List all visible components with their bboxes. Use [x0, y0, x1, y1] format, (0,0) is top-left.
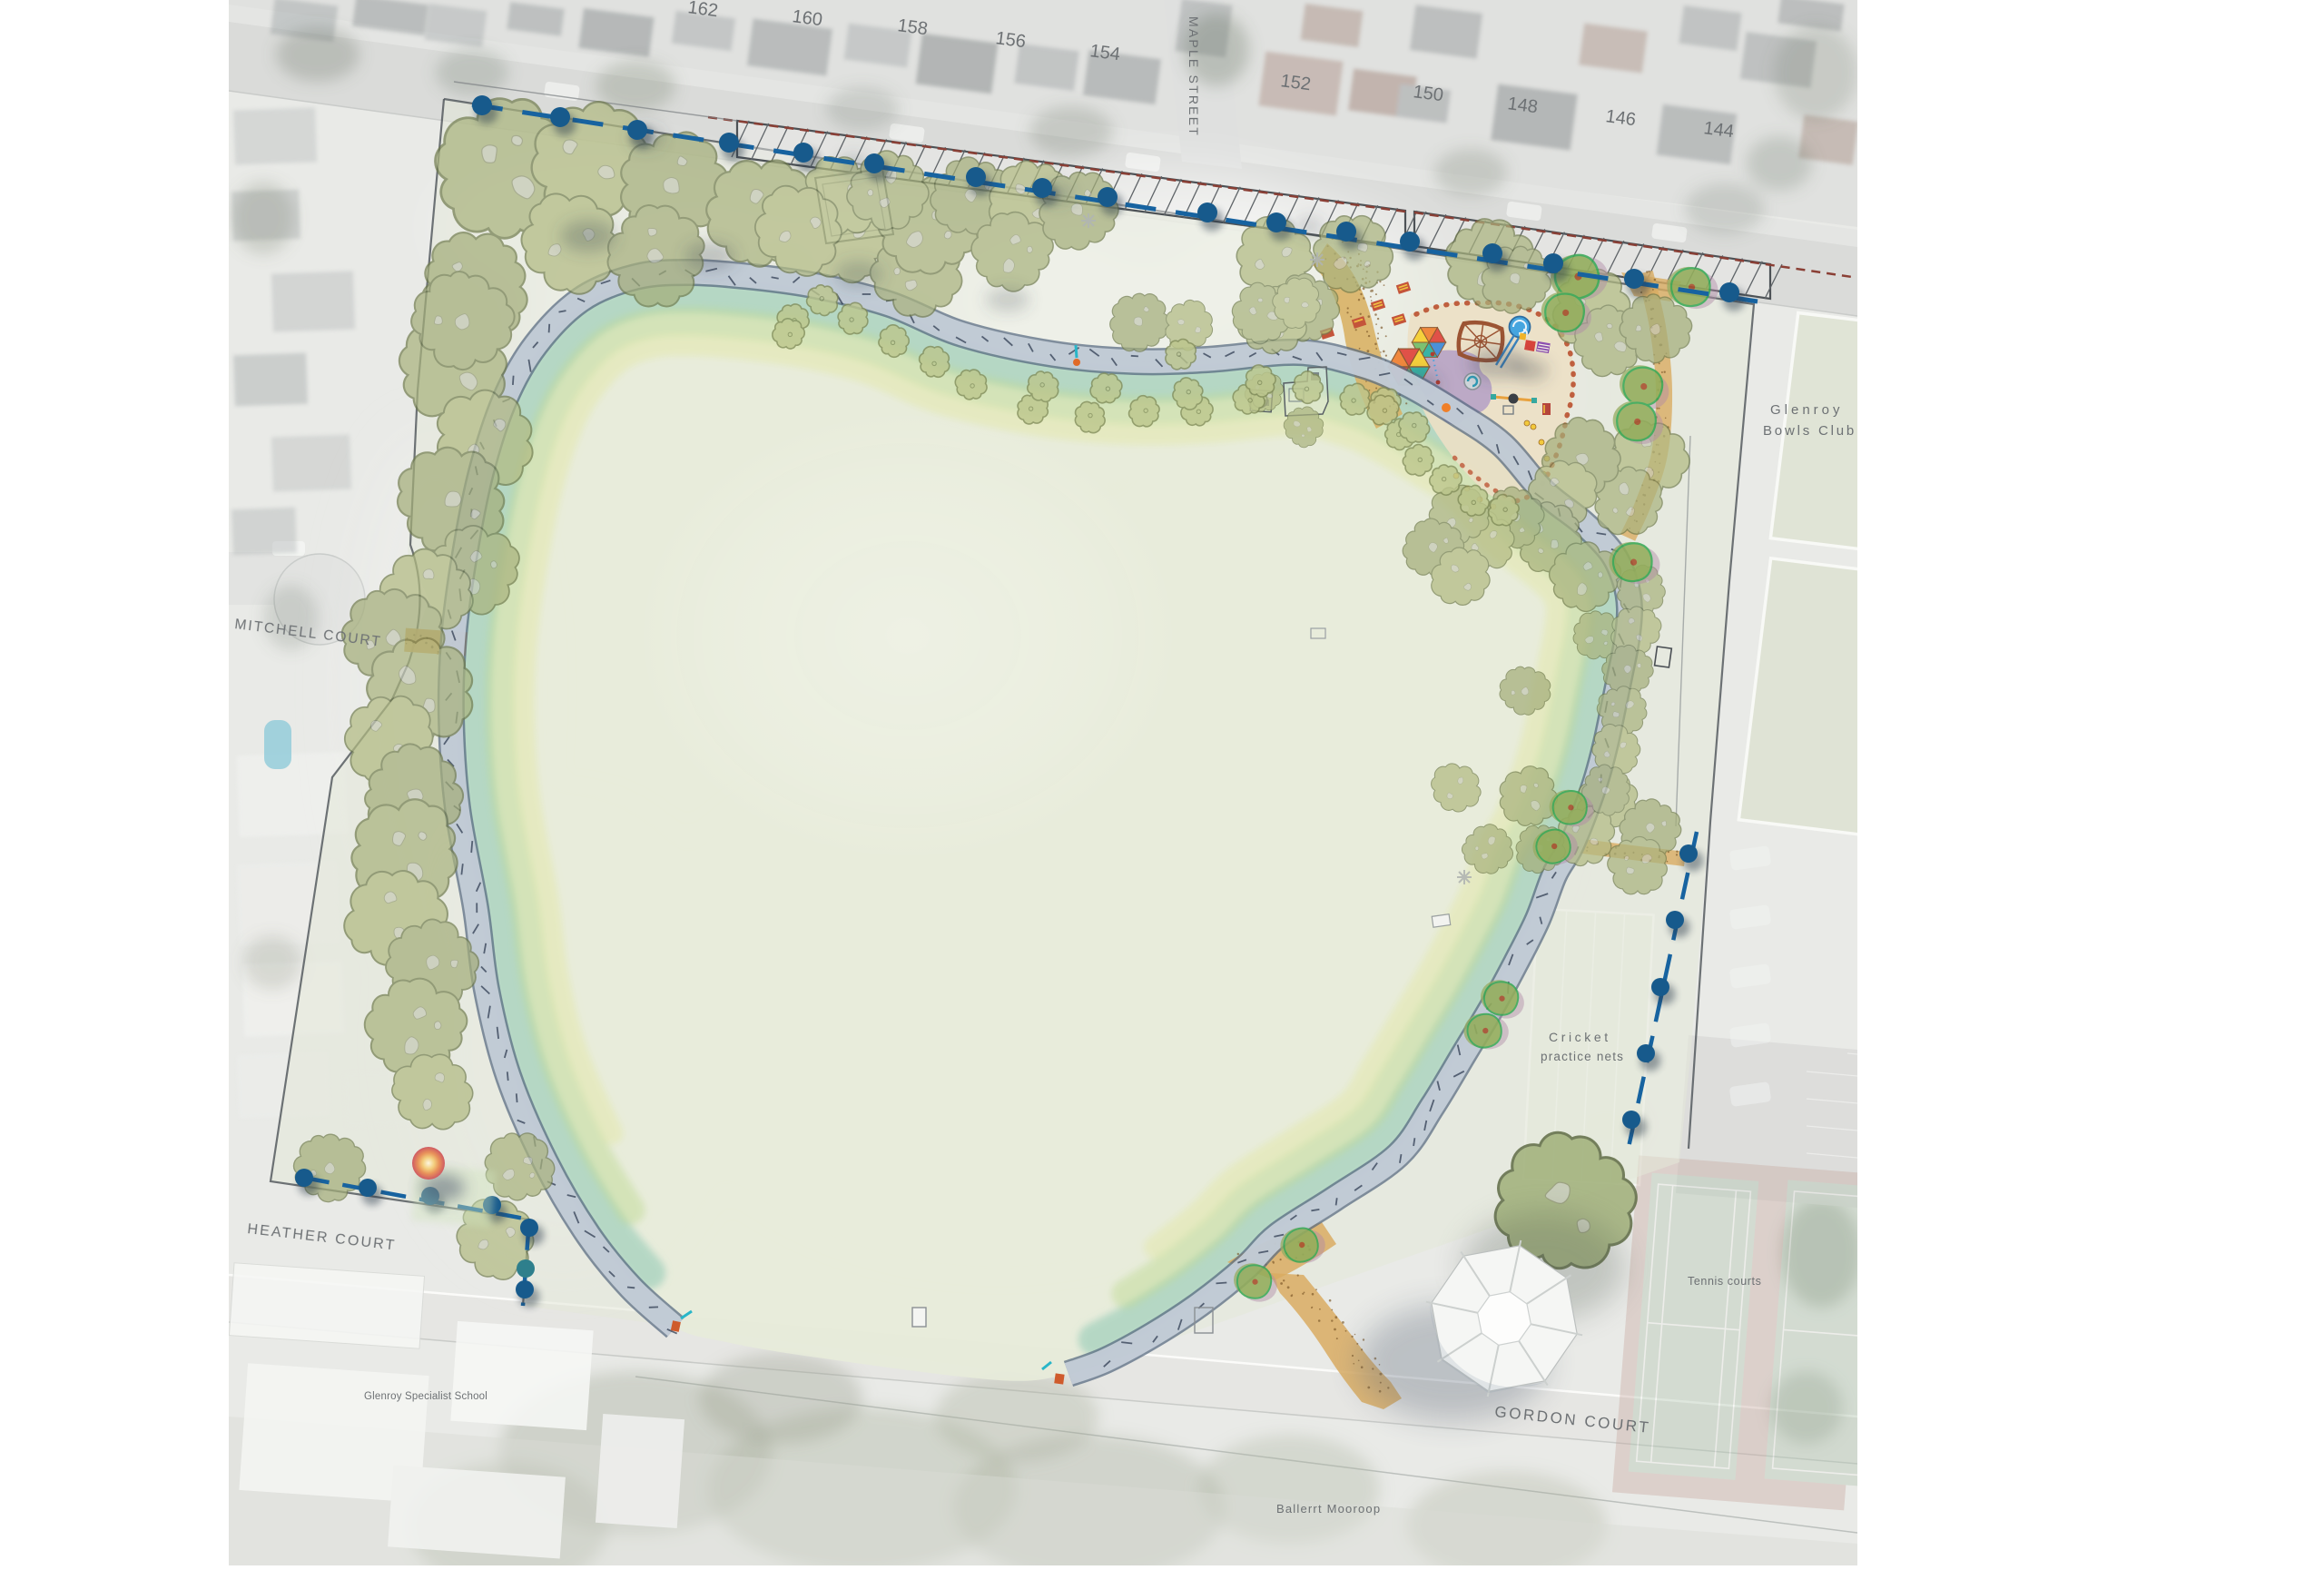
svg-text:146: 146: [1604, 106, 1637, 130]
svg-text:158: 158: [896, 15, 929, 39]
svg-text:152: 152: [1279, 71, 1312, 94]
svg-text:practice nets: practice nets: [1541, 1050, 1624, 1063]
svg-text:150: 150: [1412, 82, 1444, 105]
svg-text:144: 144: [1702, 118, 1735, 142]
svg-text:Tennis courts: Tennis courts: [1688, 1275, 1761, 1288]
svg-text:160: 160: [791, 6, 823, 30]
svg-text:148: 148: [1506, 94, 1539, 117]
svg-text:MAPLE STREET: MAPLE STREET: [1187, 16, 1201, 137]
svg-text:Glenroy Specialist School: Glenroy Specialist School: [364, 1391, 487, 1402]
svg-text:Ballerrt Mooroop: Ballerrt Mooroop: [1276, 1502, 1381, 1516]
svg-text:Bowls Club: Bowls Club: [1763, 423, 1856, 439]
svg-text:Cricket: Cricket: [1549, 1030, 1611, 1044]
svg-text:156: 156: [994, 28, 1027, 52]
svg-text:154: 154: [1088, 41, 1121, 64]
svg-text:Glenroy: Glenroy: [1770, 402, 1844, 418]
